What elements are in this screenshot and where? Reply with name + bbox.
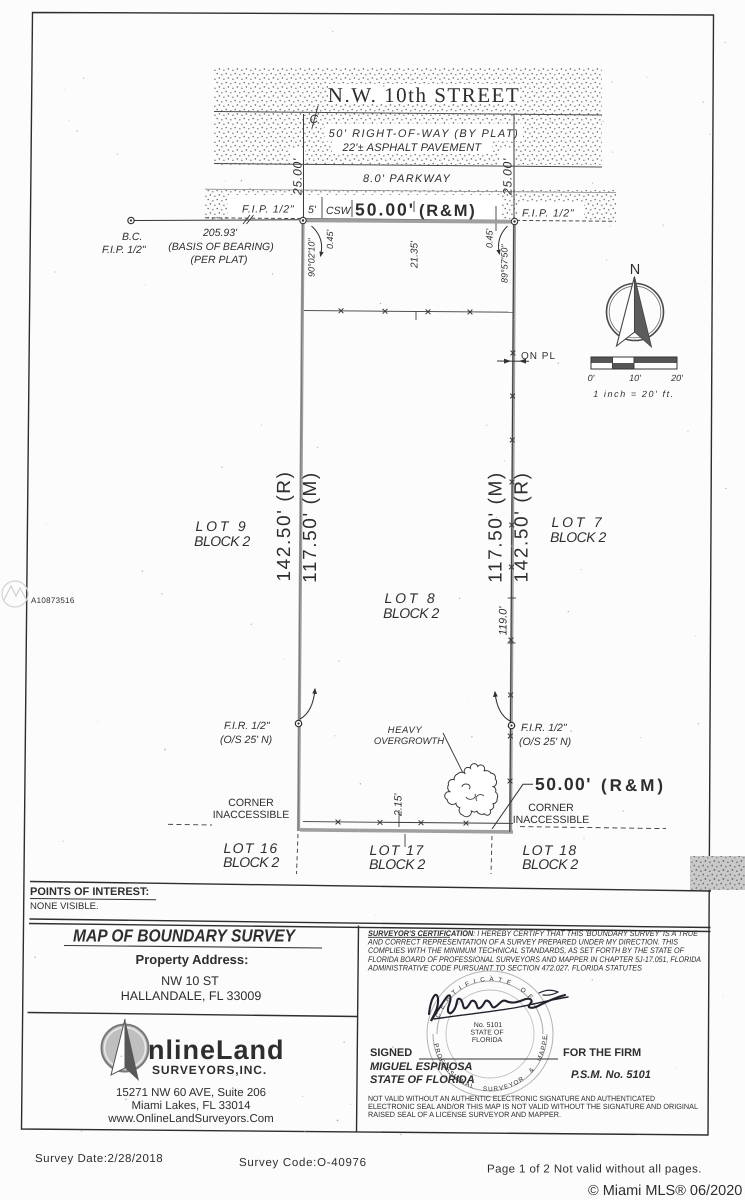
svg-text:NW 10 ST: NW 10 ST <box>161 974 219 988</box>
svg-text:SIGNED: SIGNED <box>370 1047 412 1059</box>
svg-text:STATE OF FLORIDA: STATE OF FLORIDA <box>370 1074 475 1086</box>
svg-text:117.50' (M): 117.50' (M) <box>300 471 321 583</box>
svg-text:MIGUEL ESPINOSA: MIGUEL ESPINOSA <box>370 1061 473 1073</box>
svg-text:MAP OF BOUNDARY SURVEY: MAP OF BOUNDARY SURVEY <box>73 926 296 946</box>
svg-text:NONE VISIBLE.: NONE VISIBLE. <box>30 901 99 912</box>
svg-text:ADMINISTRATIVE CODE PURSUANT T: ADMINISTRATIVE CODE PURSUANT TO SECTION … <box>367 963 642 972</box>
svg-text:5': 5' <box>308 204 317 216</box>
svg-text:8.0' PARKWAY: 8.0' PARKWAY <box>363 173 451 185</box>
svg-text:15271 NW 60 AVE, Suite 206: 15271 NW 60 AVE, Suite 206 <box>116 1087 266 1099</box>
svg-text:FOR THE FIRM: FOR THE FIRM <box>563 1047 641 1059</box>
svg-text:(PER PLAT): (PER PLAT) <box>191 254 248 266</box>
svg-text:Page 1 of 2 Not valid without: Page 1 of 2 Not valid without all pages. <box>487 1164 702 1176</box>
svg-text:(R&M): (R&M) <box>419 202 477 220</box>
svg-text:50.00': 50.00' <box>355 200 415 220</box>
svg-text:2.15': 2.15' <box>393 793 405 817</box>
svg-text:90°02'10": 90°02'10" <box>307 238 317 277</box>
svg-text:BLOCK 2: BLOCK 2 <box>522 856 578 872</box>
svg-text:HEAVY: HEAVY <box>388 725 423 736</box>
svg-text:25.00': 25.00' <box>501 158 515 196</box>
svg-text:HALLANDALE, FL 33009: HALLANDALE, FL 33009 <box>121 989 262 1003</box>
svg-text:FLORIDA: FLORIDA <box>472 1037 503 1044</box>
svg-text:25.00': 25.00' <box>291 158 305 196</box>
svg-text:89°57'50": 89°57'50" <box>500 244 510 283</box>
svg-text:0.45': 0.45' <box>325 229 335 249</box>
svg-text:21.35': 21.35' <box>410 240 421 269</box>
svg-text:POINTS OF INTEREST:: POINTS OF INTEREST: <box>30 886 149 898</box>
svg-text:BLOCK 2: BLOCK 2 <box>223 854 279 870</box>
svg-text:F.I.P. 1/2": F.I.P. 1/2" <box>102 244 147 256</box>
svg-text:119.0': 119.0' <box>498 606 510 636</box>
svg-text:22'± ASPHALT PAVEMENT: 22'± ASPHALT PAVEMENT <box>342 142 483 154</box>
svg-text:A10873516: A10873516 <box>31 596 75 605</box>
svg-text:© Miami MLS® 06/2020: © Miami MLS® 06/2020 <box>588 1183 742 1199</box>
svg-text:(O/S 25' N): (O/S 25' N) <box>519 736 571 748</box>
svg-text:BLOCK 2: BLOCK 2 <box>383 605 439 621</box>
svg-text:(O/S 25' N): (O/S 25' N) <box>220 734 272 746</box>
svg-text:ON PL: ON PL <box>521 351 556 362</box>
svg-text:10': 10' <box>629 373 641 383</box>
svg-text:CORNER: CORNER <box>228 797 274 809</box>
svg-text:B.C.: B.C. <box>122 231 142 243</box>
svg-text:N.W. 10th STREET: N.W. 10th STREET <box>328 83 520 107</box>
svg-text:205.93': 205.93' <box>202 227 238 239</box>
svg-text:Miami Lakes, FL 33014: Miami Lakes, FL 33014 <box>131 1100 251 1112</box>
svg-text:OVERGROWTH: OVERGROWTH <box>374 736 444 747</box>
svg-text:BLOCK 2: BLOCK 2 <box>194 533 250 549</box>
svg-text:(R&M): (R&M) <box>601 776 666 795</box>
svg-text:www.OnlineLandSurveyors.Com: www.OnlineLandSurveyors.Com <box>107 1113 274 1125</box>
svg-text:50.00': 50.00' <box>535 774 592 794</box>
svg-text:F.I.P. 1/2": F.I.P. 1/2" <box>242 204 295 216</box>
svg-text:N: N <box>630 262 640 278</box>
svg-text:0': 0' <box>588 373 595 383</box>
svg-text:LOT 9: LOT 9 <box>196 518 249 534</box>
svg-text:LOT 8: LOT 8 <box>385 590 438 606</box>
svg-text:No. 5101: No. 5101 <box>474 1022 503 1029</box>
svg-text:1 inch = 20' ft.: 1 inch = 20' ft. <box>593 389 675 399</box>
svg-text:F.I.R. 1/2": F.I.R. 1/2" <box>521 722 568 734</box>
svg-text:SURVEYORS,INC.: SURVEYORS,INC. <box>152 1063 267 1077</box>
svg-text:INACCESSIBLE: INACCESSIBLE <box>213 809 289 821</box>
svg-text:50' RIGHT-OF-WAY (BY PLAT): 50' RIGHT-OF-WAY (BY PLAT) <box>329 128 520 140</box>
svg-text:BLOCK 2: BLOCK 2 <box>369 856 425 872</box>
svg-text:F.I.R. 1/2": F.I.R. 1/2" <box>224 720 271 732</box>
svg-text:RAISED SEAL OF A LICENSE SURVE: RAISED SEAL OF A LICENSE SURVEYOR AND MA… <box>368 1110 561 1119</box>
svg-text:Survey Date:2/28/2018: Survey Date:2/28/2018 <box>35 1153 163 1165</box>
svg-text:Survey Code:O-40976: Survey Code:O-40976 <box>239 1157 367 1169</box>
svg-text:BLOCK 2: BLOCK 2 <box>550 529 606 545</box>
svg-text:(BASIS OF BEARING): (BASIS OF BEARING) <box>168 241 273 253</box>
svg-text:STATE OF: STATE OF <box>470 1030 503 1037</box>
svg-text:LOT 7: LOT 7 <box>552 514 605 530</box>
svg-text:Property Address:: Property Address: <box>136 952 249 967</box>
svg-text:INACCESSIBLE: INACCESSIBLE <box>513 814 589 826</box>
svg-text:117.50' (M): 117.50' (M) <box>486 471 507 583</box>
svg-text:CORNER: CORNER <box>528 802 574 814</box>
svg-text:F.I.P. 1/2": F.I.P. 1/2" <box>522 208 575 220</box>
svg-text:142.50' (R): 142.50' (R) <box>512 472 533 583</box>
svg-text:20': 20' <box>670 373 683 383</box>
svg-text:CSW: CSW <box>326 205 352 217</box>
svg-text:P.S.M. No. 5101: P.S.M. No. 5101 <box>571 1069 651 1081</box>
svg-text:nlineLand: nlineLand <box>148 1035 285 1065</box>
svg-text:0.45': 0.45' <box>485 228 495 248</box>
svg-text:142.50' (R): 142.50' (R) <box>274 471 295 582</box>
